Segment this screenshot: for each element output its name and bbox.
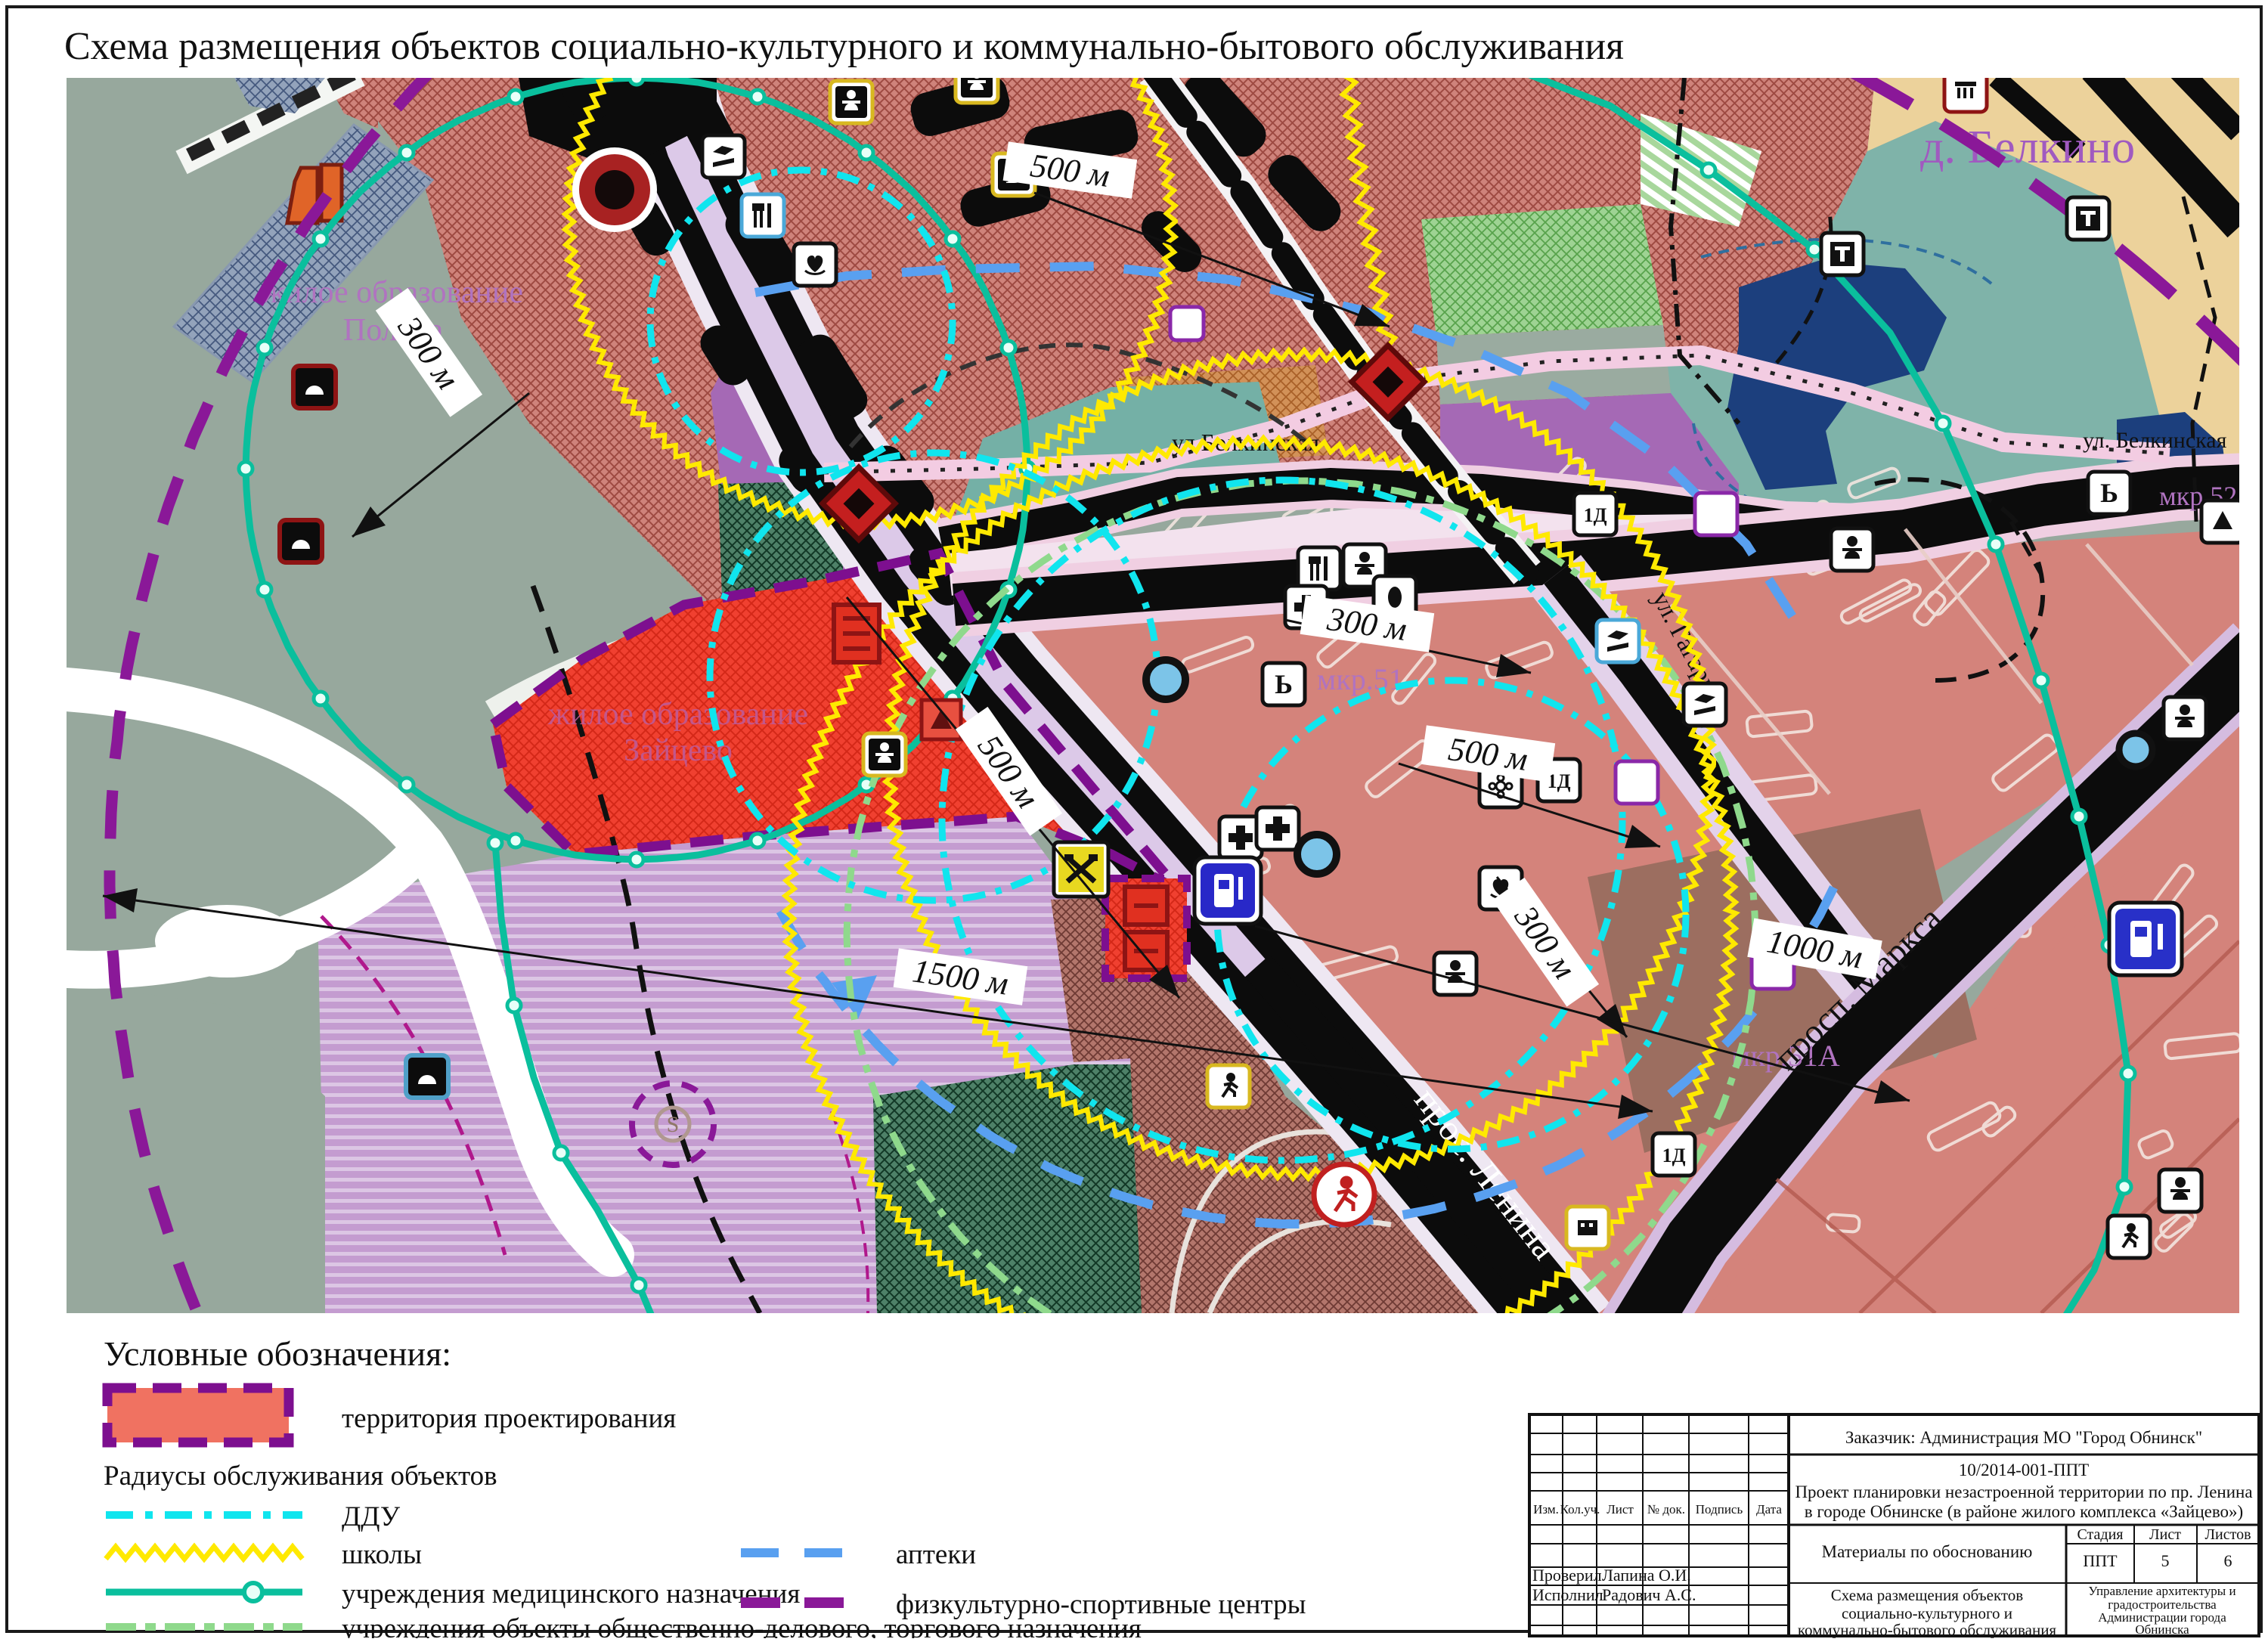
svg-text:территория проектирования: территория проектирования (342, 1403, 676, 1434)
svg-text:Радович А.С.: Радович А.С. (1602, 1585, 1696, 1604)
svg-text:Материалы по обоснованию: Материалы по обоснованию (1822, 1542, 2033, 1561)
svg-text:Ь: Ь (2100, 478, 2118, 508)
svg-text:аптеки: аптеки (896, 1539, 976, 1570)
svg-text:5: 5 (2161, 1551, 2170, 1570)
svg-text:жилое образование: жилое образование (547, 697, 808, 732)
svg-text:социально-культурного и: социально-культурного и (1842, 1604, 2012, 1622)
svg-text:Дата: Дата (1756, 1502, 1782, 1517)
svg-text:Схема размещения объектов соци: Схема размещения объектов социально-куль… (64, 25, 1624, 68)
svg-text:Лист: Лист (2149, 1526, 2181, 1543)
svg-text:Подпись: Подпись (1696, 1502, 1743, 1517)
svg-text:1Д: 1Д (1662, 1145, 1686, 1166)
svg-text:6: 6 (2224, 1551, 2232, 1570)
svg-text:мкр.51: мкр.51 (1317, 662, 1404, 696)
svg-text:в городе Обнинске (в районе жи: в городе Обнинске (в районе жилого компл… (1805, 1502, 2243, 1521)
svg-text:Заказчик: Администрация МО "Го: Заказчик: Администрация МО "Город Обнинс… (1845, 1428, 2202, 1447)
svg-text:№ док.: № док. (1647, 1502, 1685, 1517)
svg-text:Радиусы обслуживания объектов: Радиусы обслуживания объектов (104, 1461, 497, 1492)
svg-text:10/2014-001-ППТ: 10/2014-001-ППТ (1959, 1461, 2089, 1479)
svg-text:ул. Белкинская: ул. Белкинская (2083, 428, 2227, 453)
svg-text:Проект планировки незастроенно: Проект планировки незастроенной территор… (1795, 1482, 2252, 1501)
svg-text:Схема размещения объектов: Схема размещения объектов (1831, 1586, 2023, 1604)
svg-text:Обнинска: Обнинска (2135, 1622, 2189, 1637)
svg-text:Управление архитектуры и: Управление архитектуры и (2088, 1584, 2235, 1598)
svg-text:Лапина О.И.: Лапина О.И. (1602, 1566, 1691, 1585)
svg-text:Лист: Лист (1606, 1502, 1634, 1517)
svg-text:Ь: Ь (1275, 669, 1293, 699)
svg-text:коммунально-бытового обслужива: коммунально-бытового обслуживания (1798, 1621, 2057, 1638)
svg-text:Листов: Листов (2204, 1526, 2251, 1543)
svg-text:Стадия: Стадия (2077, 1526, 2123, 1543)
svg-text:Кол.уч.: Кол.уч. (1560, 1502, 1600, 1517)
svg-text:школы: школы (342, 1539, 422, 1570)
svg-text:Зайцево: Зайцево (624, 733, 733, 768)
svg-text:S: S (667, 1112, 680, 1137)
svg-text:Исполнил: Исполнил (1532, 1585, 1603, 1604)
svg-text:учреждения медицинского назн: учреждения медицинского назначения (342, 1578, 800, 1609)
svg-text:Проверил: Проверил (1532, 1566, 1602, 1585)
svg-text:физкультурно-спортивные центры: физкультурно-спортивные центры (896, 1589, 1306, 1620)
svg-text:Изм.: Изм. (1533, 1502, 1559, 1517)
svg-text:Условные обозначения:: Условные обозначения: (104, 1334, 451, 1373)
svg-text:ППТ: ППТ (2083, 1551, 2118, 1570)
svg-text:1Д: 1Д (1584, 504, 1607, 526)
svg-text:ДДУ: ДДУ (342, 1501, 401, 1532)
